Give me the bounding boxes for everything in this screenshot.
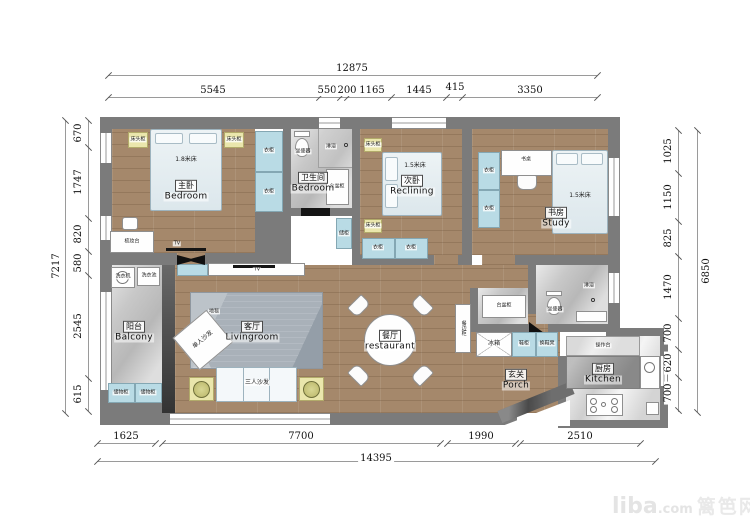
dim-right-total: 6850 (702, 256, 712, 285)
wall-balcony-south (108, 403, 162, 413)
balcony-room-label-en: Balcony (114, 334, 154, 343)
dim-label: 1445 (404, 86, 433, 96)
dim-label: 820 (74, 222, 84, 245)
dim-top-total: 12875 (334, 64, 370, 74)
wall-bath-south (330, 208, 360, 216)
washer-label: 洗衣机 (114, 274, 131, 279)
dim-label: 1625 (111, 432, 140, 442)
shower-label: 淋浴 (583, 283, 595, 288)
desk-chair (517, 175, 537, 190)
stove (586, 394, 623, 416)
tv-label: TV (173, 241, 181, 246)
bath1-room-label-cn: 卫生间 (298, 172, 328, 184)
dim-label: 580 (74, 251, 84, 274)
wall-bath2-west (528, 262, 536, 314)
wall-master-bath (283, 129, 291, 216)
wall-porch-north (470, 324, 530, 332)
pillow (556, 153, 578, 165)
dim-label: 2510 (565, 432, 594, 442)
wardrobe-label: 衣柜 (263, 189, 275, 194)
sideboard-label: 餐边柜 (460, 320, 465, 337)
living-room-label-en: Livingroom (224, 334, 279, 343)
nightstand-label: 床头柜 (364, 142, 381, 147)
plant-icon (193, 381, 210, 398)
wall-master-south (112, 253, 177, 265)
wall-porch-north (548, 324, 610, 332)
kitchen-room-label-cn: 厨房 (592, 363, 614, 375)
second-room-label-en: Reclining (389, 188, 435, 197)
storage-label: 储物柜 (112, 390, 129, 395)
pillow (189, 133, 217, 144)
bath1-door-icon (301, 208, 330, 216)
shower-head-icon (344, 143, 348, 147)
dim-line (65, 120, 66, 413)
master-room-label-cn: 主卧 (175, 180, 197, 192)
dim-label: 620 (664, 351, 674, 374)
dim-tick (637, 440, 644, 447)
wall-kitchen-bottom (558, 420, 668, 428)
bath1-room-label-en: Bedroom (291, 185, 336, 194)
dim-line (108, 75, 597, 76)
storage-label: 储物柜 (139, 390, 156, 395)
window (100, 133, 112, 163)
wall-closet-block (255, 212, 291, 265)
pillow (155, 133, 183, 144)
dim-line (697, 130, 698, 412)
dim-label: 200 (335, 86, 358, 96)
window (608, 158, 620, 216)
wall-bath-second (352, 129, 360, 265)
toilet (546, 291, 562, 296)
living-room-label-cn: 客厅 (241, 321, 263, 333)
wardrobe-label: 衣柜 (483, 168, 495, 173)
burner-icon (590, 406, 597, 413)
window (100, 292, 112, 390)
hall-storage-label: 储柜 (338, 231, 350, 236)
plant-table (299, 377, 324, 401)
window (392, 117, 446, 129)
pillow (385, 157, 398, 181)
door-gap-floor (482, 255, 515, 265)
nightstand-label: 床头柜 (225, 137, 242, 142)
plant-icon (303, 381, 320, 398)
single-sofa-label: 单人沙发 (191, 329, 215, 350)
porch-room-label-en: Porch (502, 382, 530, 391)
laundry-sink-label: 洗衣池 (140, 273, 157, 278)
master-room-label-en: Bedroom (164, 193, 209, 202)
study-room-label-en: Study (541, 220, 571, 229)
plant-table (189, 377, 214, 401)
dim-label: 700 (664, 381, 674, 404)
window (608, 273, 620, 303)
floor-plan: 床头柜 床头柜 衣柜 衣柜 梳妆台 TV 1.8米床 主卧 Bedroom 淋浴… (0, 0, 750, 530)
dim-line (88, 120, 89, 411)
dim-label: 5545 (198, 86, 227, 96)
shoe-cabinet-label: 鞋柜 (518, 341, 530, 346)
burner-icon (590, 398, 597, 405)
kitchen-room-label-en: Kitchen (584, 376, 622, 385)
wall-right (608, 117, 620, 336)
counter-label: 操作台 (594, 343, 611, 348)
dining-room-label-en: restaurant (364, 343, 416, 352)
nightstand-label: 床头柜 (364, 223, 381, 228)
dim-line (520, 443, 640, 444)
wall-kitchen-top (606, 328, 668, 336)
balcony-room-label-cn: 阳台 (123, 321, 145, 333)
window (319, 117, 340, 129)
dim-label: 670 (74, 121, 84, 144)
watermark-brand: liba (612, 494, 658, 519)
dim-bottom-total: 14395 (358, 454, 394, 464)
toilet-label: 坐便器 (546, 307, 563, 312)
burner-icon (611, 406, 618, 413)
dim-label: 3350 (515, 86, 544, 96)
dim-label: 615 (74, 382, 84, 405)
dim-label: 1747 (74, 167, 84, 196)
dim-tick (594, 72, 601, 79)
watermark-domain: .com (658, 502, 693, 517)
dim-label: 1150 (664, 182, 674, 211)
porch-room-label-cn: 玄关 (505, 369, 527, 381)
sink-icon (644, 362, 655, 373)
fridge-label: 冰箱 (487, 341, 501, 347)
knob-icon (601, 402, 606, 407)
wall-second-study (462, 129, 472, 265)
toilet-label: 坐便器 (294, 149, 311, 154)
tv-side-cabinet (177, 264, 208, 276)
window (170, 413, 330, 425)
watermark: liba.com篱笆网 (612, 492, 750, 519)
pillow (581, 153, 603, 165)
wardrobe-label: 衣柜 (405, 245, 417, 250)
dressing-stool (122, 217, 138, 230)
dim-label: 415 (443, 83, 466, 93)
dim-left-total: 7217 (52, 251, 62, 280)
dim-tick (594, 94, 601, 101)
second-room-label-cn: 次卧 (401, 175, 423, 187)
dim-line (108, 97, 597, 98)
bath2-tub (576, 311, 607, 322)
dim-label: 1990 (466, 432, 495, 442)
desk (501, 150, 552, 176)
dim-label: 7700 (286, 432, 315, 442)
master-bed-size: 1.8米床 (174, 157, 198, 163)
desk-label: 书桌 (520, 157, 532, 162)
dim-label: 700 (664, 321, 674, 344)
watermark-site: 篱笆网 (697, 496, 750, 518)
dim-label: 1165 (357, 86, 386, 96)
sofa3-label: 三人沙发 (244, 380, 270, 386)
study-room-label-cn: 书房 (545, 207, 567, 219)
shoe-bench-label: 换鞋凳 (538, 341, 555, 346)
dim-label: 825 (664, 226, 674, 249)
wall-tv (166, 248, 206, 251)
shower-label: 淋浴 (325, 144, 337, 149)
door-gap-floor (434, 255, 458, 265)
wardrobe-label: 衣柜 (483, 206, 495, 211)
wall-top (100, 117, 620, 129)
nightstand-label: 床头柜 (129, 137, 146, 142)
dresser-label: 梳妆台 (123, 239, 140, 244)
shower-head-icon (591, 298, 595, 302)
dim-label: 1025 (664, 136, 674, 165)
dim-tick (652, 458, 659, 465)
dim-label: 2545 (74, 311, 84, 340)
second-bed-size: 1.5米床 (403, 163, 427, 169)
dim-line (162, 443, 440, 444)
wardrobe-label: 衣柜 (372, 245, 384, 250)
dim-line (447, 443, 515, 444)
kitchen-cabinet (646, 402, 659, 415)
dim-label: 1470 (664, 272, 674, 301)
wardrobe-label: 衣柜 (263, 148, 275, 153)
study-bed-size: 1.5米床 (568, 193, 592, 199)
dining-room-label-cn: 餐厅 (379, 330, 401, 342)
dim-line (97, 443, 155, 444)
burner-icon (611, 398, 618, 405)
toilet (294, 131, 310, 137)
tv-label: TV (253, 267, 261, 272)
basin-label: 台盆柜 (495, 303, 512, 308)
